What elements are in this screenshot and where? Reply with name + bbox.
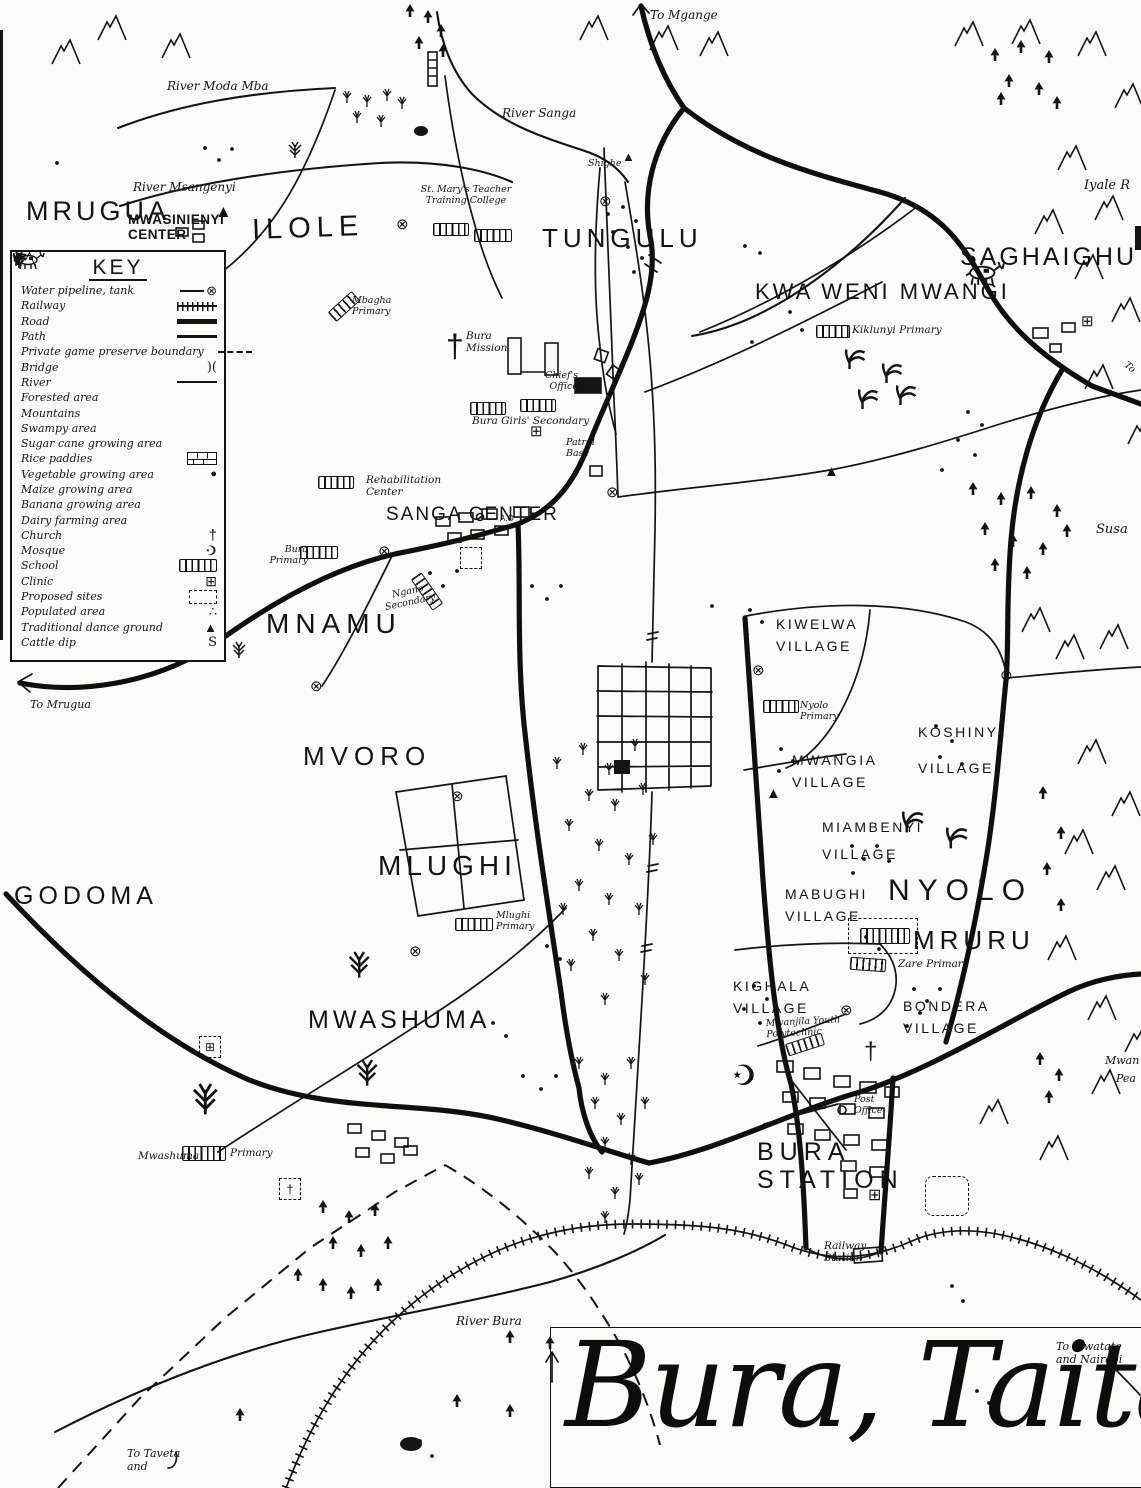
water-tank-icon: ⊗ [599,194,612,209]
region-mwashuma: MWASHUMA [308,1006,490,1034]
boundary-symbol [204,351,252,353]
school-icon [850,957,887,972]
to-mrugua-label: To Mrugua [30,698,91,711]
dance-ground-icon: ▲ [622,150,635,163]
key-row: Road [12,314,224,329]
village-bondera: BONDERA VILLAGE [903,996,1003,1039]
key-row: Dairy farming area [12,512,224,527]
mosque-icon: ☪ [731,1062,756,1090]
school-icon [763,700,799,713]
water-pipeline-tank-symbol: ⊗ [169,283,217,299]
bura-mission-label: Bura Mission [466,330,518,354]
pea-label: Pea [1116,1072,1136,1085]
village-miambenyi: MIAMBENYI VILLAGE [822,814,946,867]
river-moda-mba-label: River Moda Mba [167,79,269,93]
river-msangenyi-label: River Msangenyi [133,180,236,194]
dance-ground-icon: ▲ [169,620,217,635]
school-icon [169,559,217,572]
region-bura-station: BURA STATION [757,1138,942,1194]
water-tank-icon: ⊗ [396,217,409,232]
proposed-site-symbol [169,590,217,604]
to-mgange-label: To Mgange [650,8,718,22]
key-row: Traditional dance ground ▲ [12,620,224,635]
key-row: Swampy area [12,421,224,436]
proposed-church-box: † [279,1178,301,1200]
proposed-clinic-box: ⊞ [199,1036,221,1058]
cattle-dip-icon: S [169,635,217,650]
village-mwangia: MWANGIA VILLAGE [792,750,894,793]
key-row: Clinic ⊞ [12,574,224,589]
river-sanga-label: River Sanga [502,106,576,120]
key-row: Path [12,329,224,344]
school-icon [433,223,469,236]
map-key: KEY Water pipeline, tank ⊗ Railway Road … [10,250,226,662]
church-icon: † [169,527,217,544]
st-marys-label: St. Mary's Teacher Training College [420,184,512,206]
village-koshinyi: KOSHINYI VILLAGE [918,714,1024,787]
swamp-icons [343,89,657,1223]
scan-edge [0,30,3,640]
water-tank-icon: ⊗ [409,944,422,959]
key-row: Water pipeline, tank ⊗ [12,283,224,298]
clinic-icon: ⊞ [1081,314,1094,329]
title-box: Bura, Taita [550,1327,1141,1488]
key-row: Bridge )( [12,359,224,374]
key-row: River [12,375,224,390]
school-icon [520,399,556,412]
region-godoma: GODOMA [14,882,158,910]
vegetable-icon: ● [169,468,217,480]
zare-primary-label: Zare Primary [898,958,969,970]
region-mnamu: MNAMU [266,608,402,639]
nyolo-primary-label: Nyolo Primary [800,700,844,722]
chiefs-office-building [575,378,601,393]
railway-station-label: Railway Station [824,1240,874,1264]
mwashuma-primary-suffix: Primary [230,1147,273,1159]
clinic-icon: ⊞ [169,573,217,590]
bridge-icon: )( [169,360,217,375]
school-icon [182,1146,226,1161]
admin-office-label: A.O [500,514,514,523]
key-row: School [12,558,224,573]
water-tank-icon: ⊗ [451,789,464,804]
chiefs-office-label: Chief's Office [544,370,578,392]
region-sanga-center: SANGA CENTER [386,504,559,525]
water-tank-icon: ⊗ [840,1003,853,1018]
rice-paddies-area [597,662,712,792]
mosque-icon: ☪ [169,543,217,559]
bura-taita-map: KEY Water pipeline, tank ⊗ Railway Road … [0,0,1141,1488]
dance-ground-icon: ▲ [215,203,232,220]
key-row: Vegetable growing area ● [12,467,224,482]
region-kwa-weni-mwangi: KWA WENI MWANGI [755,280,1010,305]
iyale-label: Iyale R [1084,178,1130,193]
key-row: Cattle dip S [12,635,224,650]
patrol-base-label: Patrol Base [566,437,604,459]
water-tank-icon: ⊗ [606,485,619,500]
region-mvoro: MVORO [303,742,431,771]
dance-ground-icon: ▲ [824,464,839,479]
key-row: Proposed sites [12,589,224,604]
post-office-label: Post Office [854,1094,886,1116]
region-mlughi: MLUGHI [378,850,517,881]
key-row: Private game preserve boundary [12,344,224,359]
key-row: Rice paddies [12,451,224,466]
mbagha-primary-label: Mbagha Primary [352,295,400,317]
region-tungulu: TUNGULU [542,224,703,253]
region-nyolo: NYOLO [888,874,1033,908]
village-kighala: KIGHALA VILLAGE [733,976,829,1019]
region-ilole: ILOLE [251,210,364,246]
key-row: Mosque ☪ [12,543,224,558]
river-bura-label: River Bura [456,1314,522,1328]
key-row: Railway [12,298,224,313]
mlughi-primary-label: Mlughi Primary [496,910,538,932]
region-mruru: MRURU [913,926,1035,955]
water-tank-icon: ⊗ [378,544,391,559]
school-icon [318,476,354,489]
populated-area-symbol: ∴ [169,604,217,620]
clinic-icon: ⊞ [530,424,543,439]
school-icon [470,402,506,415]
map-title: Bura, Taita [565,1316,1141,1454]
village-kiwelwa: KIWELWA VILLAGE [776,614,888,657]
clinic-icon: ⊞ [868,1188,881,1204]
mwan-label: Mwan [1105,1054,1139,1067]
kiklunyi-primary-label: Kiklunyi Primary [852,324,942,336]
rice-paddies-icon [169,452,217,465]
key-row: Forested area [12,390,224,405]
proposed-site-box [848,918,918,954]
church-icon: † [446,330,464,362]
river-symbol [169,381,217,383]
church-icon: † [864,1040,877,1064]
key-row: Populated area ∴ [12,604,224,619]
proposed-site-box [925,1176,969,1216]
key-row: Maize growing area [12,482,224,497]
railway-symbol [169,305,217,307]
road-symbol [169,319,217,324]
key-row: Church † [12,528,224,543]
key-row: Sugar cane growing area [12,436,224,451]
key-row: Banana growing area [12,497,224,512]
school-icon [816,325,850,338]
rehabilitation-center-label: Rehabilitation Center [366,474,450,498]
to-taveta-label: To Taveta and [127,1447,189,1473]
path-symbol [169,335,217,337]
dance-ground-icon: ▲ [766,786,781,801]
susa-label: Susa [1096,522,1128,537]
water-tank-icon: ⊗ [1000,668,1013,683]
school-icon [474,229,512,242]
shighe-label: Shighe [588,158,622,169]
key-row: Mountains [12,405,224,420]
school-icon [300,546,338,559]
proposed-site-box [460,547,482,569]
region-saghaighu: SAGHAIGHU [960,243,1137,271]
school-icon [455,918,493,931]
water-tank-icon: ⊗ [752,663,765,678]
water-tank-icon: ⊗ [310,679,323,694]
